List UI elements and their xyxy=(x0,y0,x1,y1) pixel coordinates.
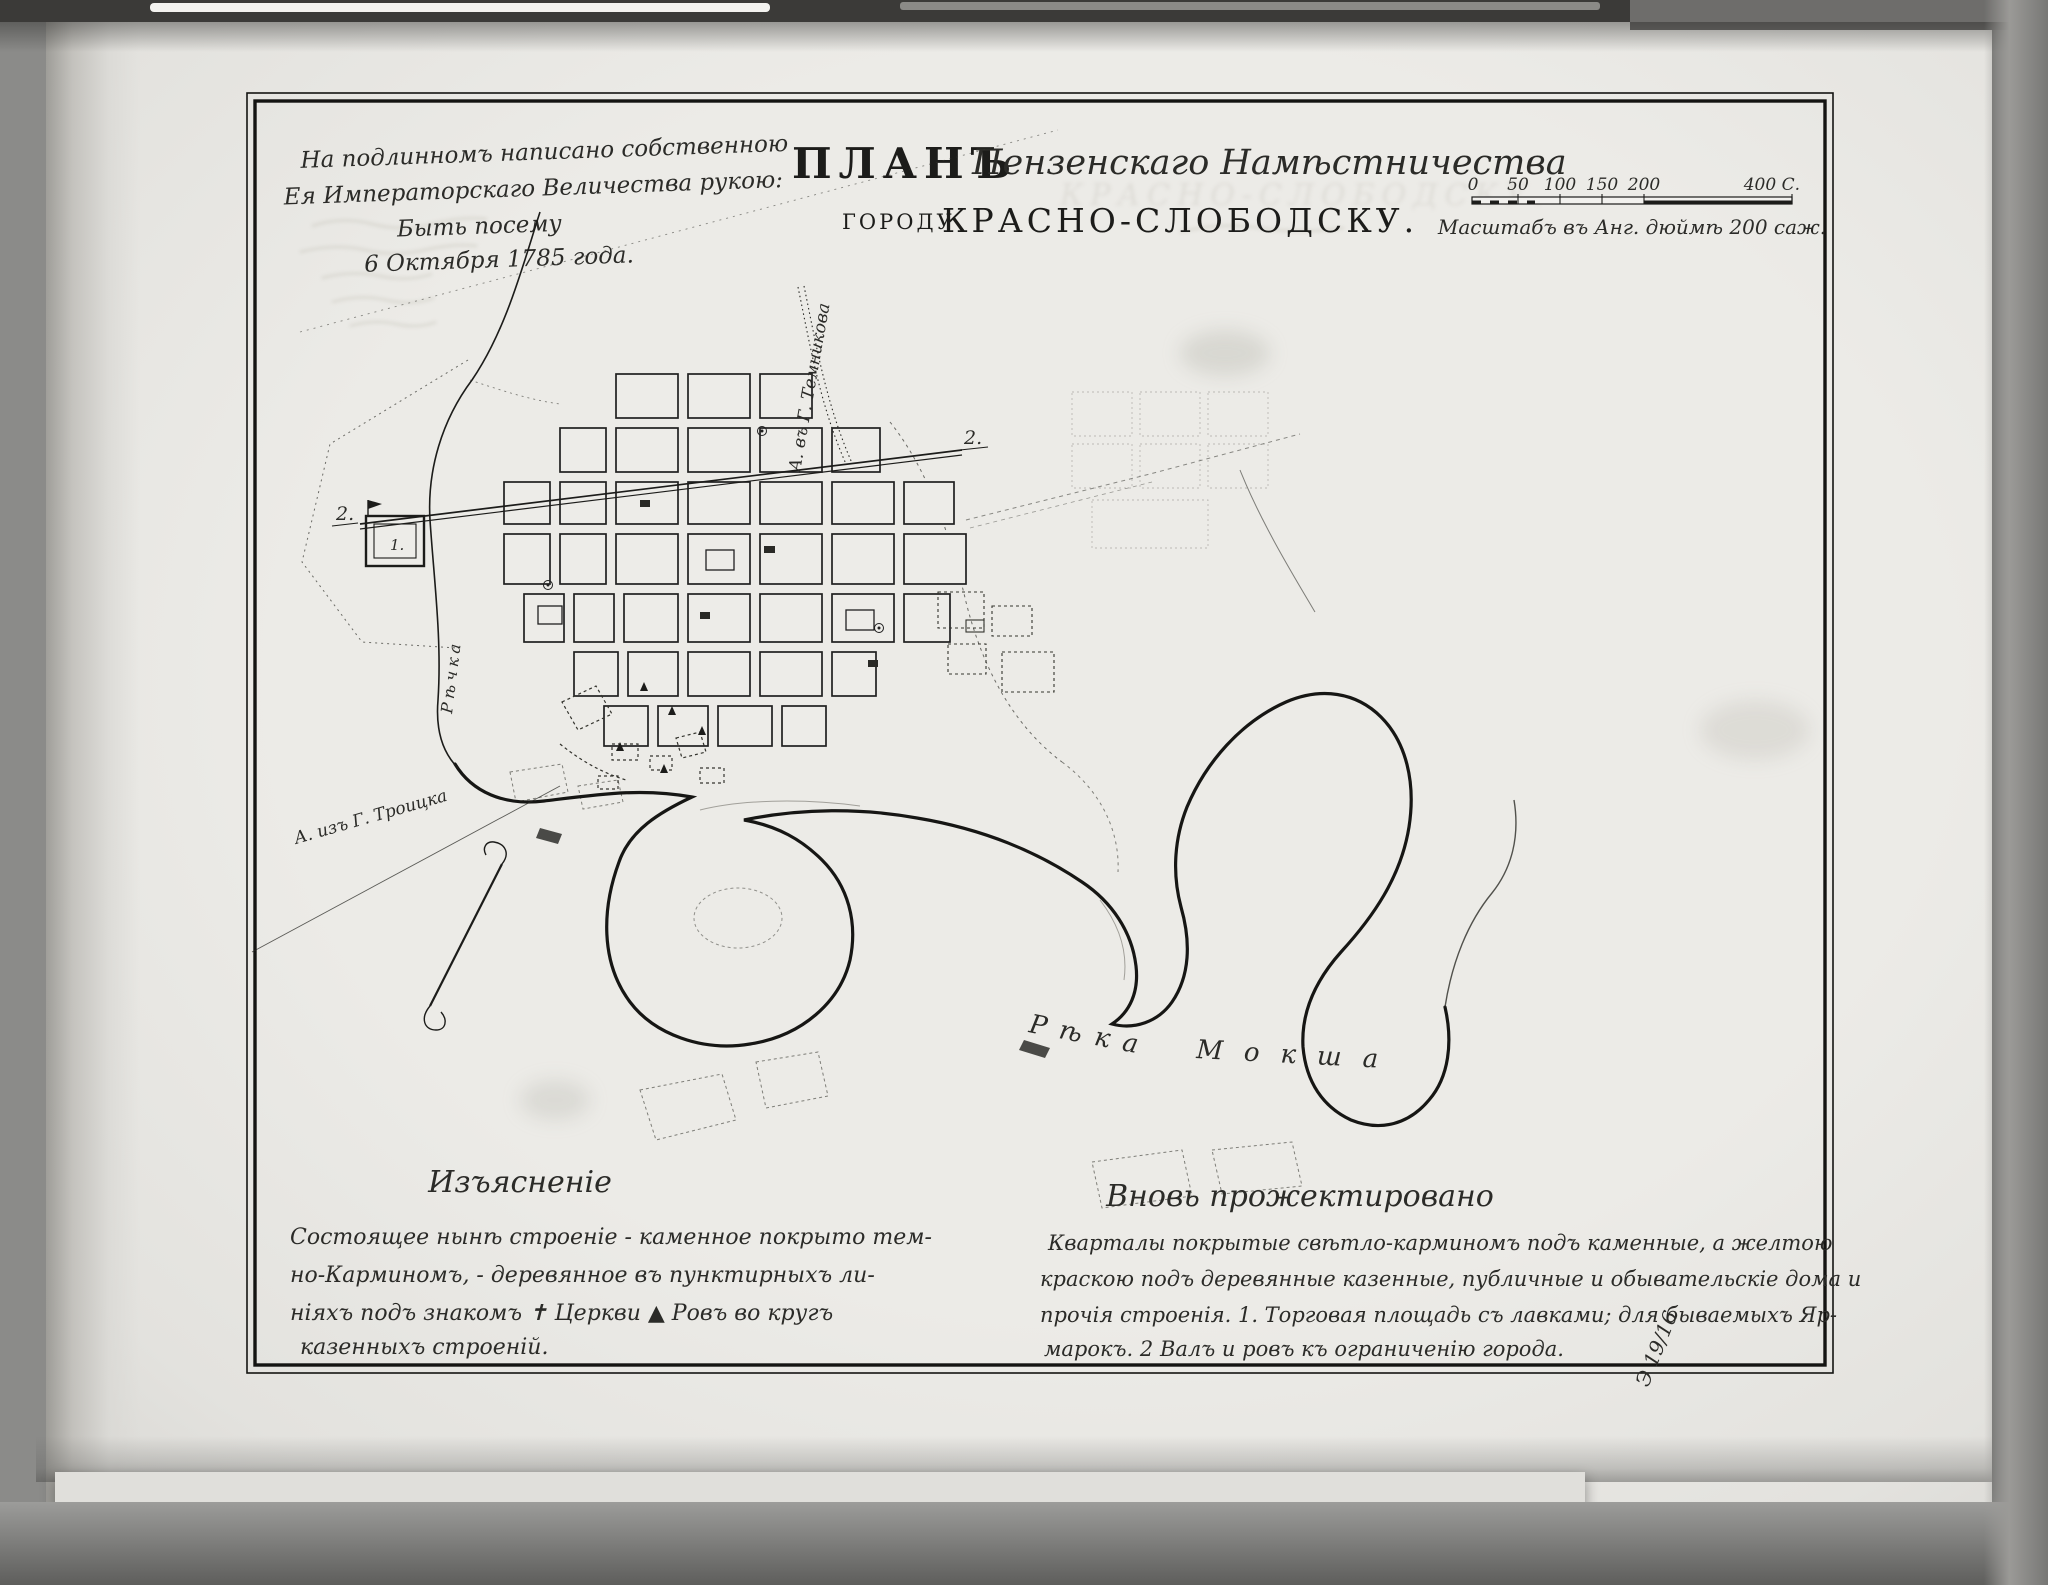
scale-tick-200: 200 xyxy=(1627,175,1661,195)
legend-right-line-4: марокъ. 2 Валъ и ровъ къ ограниченію гор… xyxy=(1044,1337,1564,1361)
scanned-page: КРАСНО-СЛОБОДСКУ. На подлинномъ написано… xyxy=(0,0,2048,1585)
map-svg: КРАСНО-СЛОБОДСКУ. На подлинномъ написано… xyxy=(0,0,2048,1585)
title-city-name: КРАСНО-СЛОБОДСКУ. xyxy=(942,201,1418,240)
scale-caption: Масштабъ въ Анг. дюймѣ 200 саж. xyxy=(1437,215,1826,239)
right-page-edge xyxy=(1984,0,2048,1585)
legend-left-heading: Изъясненіе xyxy=(427,1165,612,1200)
scale-tick-100: 100 xyxy=(1544,175,1577,195)
legend-left-line-1: Состоящее нынѣ строеніе - каменное покры… xyxy=(290,1225,932,1250)
rampart-label-west: 2. xyxy=(335,503,354,525)
city-grid xyxy=(504,374,966,746)
top-page-sliver xyxy=(150,3,770,12)
legend-right-heading: Вновь прожектировано xyxy=(1105,1179,1494,1214)
legend-left-line-3: ніяхъ подъ знакомъ ✝ Церкви ▲ Ровъ во кр… xyxy=(290,1301,833,1326)
legend-left-line-2: но-Карминомъ, - деревянное въ пунктирных… xyxy=(290,1263,875,1288)
imperial-note-line-2: Ея Императорскаго Величества рукою: xyxy=(282,167,783,210)
river-bank-faint xyxy=(700,801,1125,980)
suburb-blocks xyxy=(938,592,1054,692)
scale-tick-50: 50 xyxy=(1507,175,1529,195)
imperial-note-line-4: 6 Октября 1785 года. xyxy=(364,242,635,277)
river-moksha-exit xyxy=(1445,800,1516,1007)
imperial-note-line-1: На подлинномъ написано собственною xyxy=(299,131,788,174)
title-city-prefix: ГОРОДУ xyxy=(842,210,955,234)
page-spine-fold xyxy=(36,0,140,1502)
legend-left: Изъясненіе Состоящее нынѣ строеніе - кам… xyxy=(290,1165,932,1360)
top-shadow xyxy=(0,22,2048,52)
imperial-note-line-3: Быть посему xyxy=(396,211,563,243)
imperial-note: На подлинномъ написано собственною Ея Им… xyxy=(281,131,792,281)
mud-blob-1 xyxy=(536,828,562,844)
compass-needle xyxy=(424,842,506,1030)
road-troitsk-label: А. изъ Г. Троицка xyxy=(291,786,450,849)
river-label-moksha: Мокша xyxy=(1195,1035,1400,1076)
fortress-label: 1. xyxy=(390,536,404,554)
small-river-label: Рѣчка xyxy=(437,639,465,716)
legend-right: Вновь прожектировано Кварталы покрытые с… xyxy=(1040,1179,1861,1361)
left-page-edge xyxy=(0,0,46,1585)
legend-right-line-2: краскою подъ деревянные казенные, публич… xyxy=(1040,1267,1861,1291)
scan-background xyxy=(0,1502,2048,1585)
rampart-label-east: 2. xyxy=(963,427,982,449)
scale-tick-150: 150 xyxy=(1586,175,1619,195)
scale-tick-0: 0 xyxy=(1468,175,1479,195)
legend-right-line-1: Кварталы покрытые свѣтло-карминомъ подъ … xyxy=(1047,1231,1832,1255)
proto-grid xyxy=(1072,392,1268,548)
legend-right-line-3: прочія строенія. 1. Торговая площадь съ … xyxy=(1040,1303,1837,1327)
scale-end-label: 400 С. xyxy=(1743,175,1800,195)
legend-left-line-4: казенныхъ строеній. xyxy=(300,1335,548,1360)
tributary xyxy=(1240,470,1315,612)
top-page-sliver xyxy=(900,2,1600,10)
fortress: 1. xyxy=(366,500,424,566)
mud-blob-2 xyxy=(1019,1040,1050,1058)
